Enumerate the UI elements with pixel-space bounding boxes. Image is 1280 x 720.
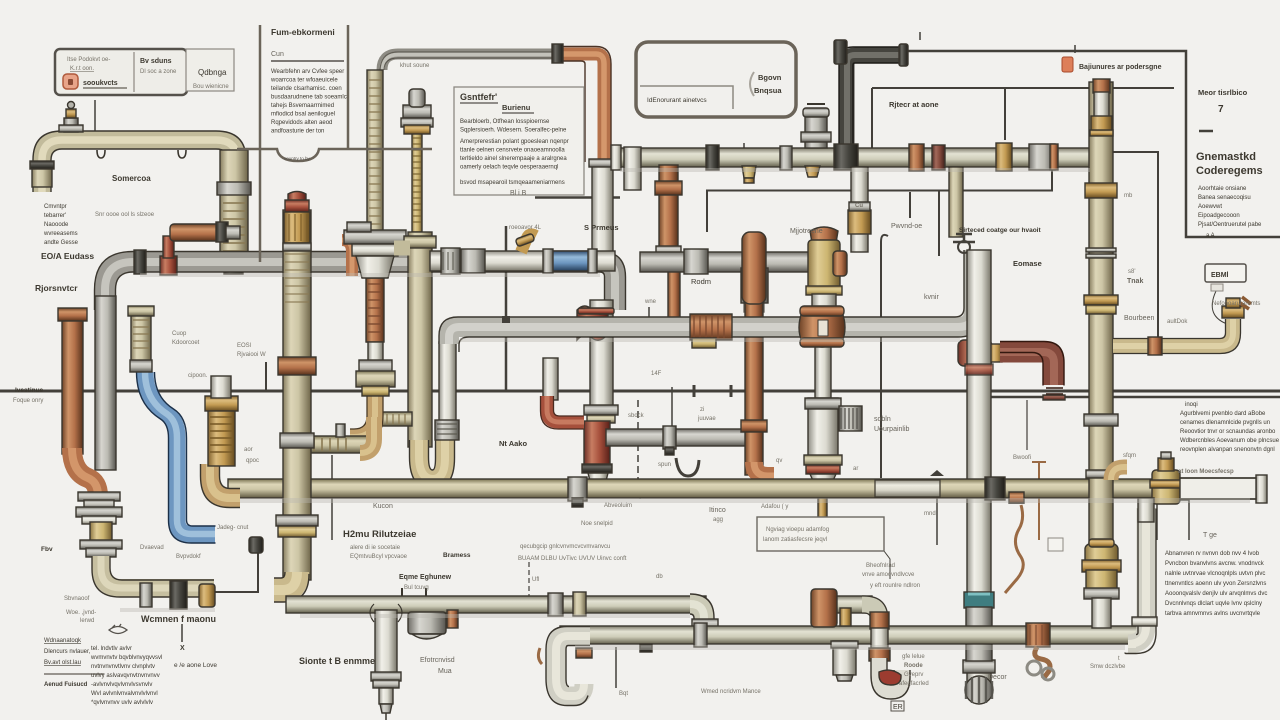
svg-text:Bul tcuvg: Bul tcuvg — [404, 585, 429, 591]
svg-text:Bv.avt olst.lau: Bv.avt olst.lau — [44, 660, 81, 666]
svg-text:mfiodicd bsal aeniloguel: mfiodicd bsal aeniloguel — [271, 112, 335, 118]
svg-text:Kdoorcoet: Kdoorcoet — [172, 340, 200, 346]
svg-text:s8': s8' — [1128, 269, 1135, 275]
svg-text:IdEnorurant ainetvcs: IdEnorurant ainetvcs — [647, 97, 707, 104]
svg-text:khut soune: khut soune — [400, 63, 430, 69]
svg-text:aor: aor — [244, 447, 253, 453]
svg-text:EO/A Eudass: EO/A Eudass — [41, 251, 94, 261]
svg-text:Dvaevad: Dvaevad — [140, 545, 164, 551]
svg-text:Pjsat/Oentruerutel pabe: Pjsat/Oentruerutel pabe — [1198, 222, 1262, 228]
svg-text:uvlvy aslvavqvnvtnvnvnvv: uvlvy aslvavqvnvtnvnvnvv — [91, 673, 160, 679]
svg-text:Qdbnga: Qdbnga — [198, 68, 227, 77]
svg-text:nvtnvnvnvtlvnv clvnplvtv: nvtnvnvnvtlvnv clvnplvtv — [91, 664, 155, 670]
svg-text:Somercoa: Somercoa — [112, 174, 151, 183]
svg-text:Amerprerestian polant gpoeslea: Amerprerestian polant gpoeslean nqenpr — [460, 139, 569, 145]
svg-text:Cmvntpr: Cmvntpr — [44, 204, 67, 210]
svg-text:Wdnaanatoqk: Wdnaanatoqk — [44, 638, 82, 644]
svg-text:Aoewvwt: Aoewvwt — [1198, 204, 1222, 210]
svg-text:Rqpevidods alten aeod: Rqpevidods alten aeod — [271, 120, 332, 126]
svg-text:Bv sduns: Bv sduns — [140, 58, 172, 65]
svg-text:Sbvnaoof: Sbvnaoof — [64, 596, 90, 602]
svg-text:Rjtecr at aone: Rjtecr at aone — [889, 100, 939, 109]
svg-text:Eqme Eghunew: Eqme Eghunew — [399, 574, 452, 581]
svg-text:Ivestinue: Ivestinue — [15, 387, 44, 394]
svg-text:BUAAM DLBU UvTivc UVUV Uinvc c: BUAAM DLBU UvTivc UVUV Uinvc conft — [518, 556, 627, 562]
svg-text:nalnle uvtnrvae vlcnoqnlpls uv: nalnle uvtnrvae vlcnoqnlpls uvtvn plvc — [1165, 571, 1265, 577]
svg-text:Sqplersioerh. Wdesern. Soeralf: Sqplersioerh. Wdesern. Soeralfec-pelne — [460, 128, 567, 134]
svg-text:*qvlvnvnvv uvlv avlvlvlv: *qvlvnvnvv uvlv avlvlvlv — [91, 700, 153, 706]
svg-text:wvmvnvtv bqvblvnvyqvvsvl: wvmvnvtv bqvblvnvyqvvsvl — [90, 655, 162, 661]
svg-text:Sirteced coatge our hvaoit: Sirteced coatge our hvaoit — [959, 227, 1041, 234]
svg-text:EOSl: EOSl — [237, 343, 251, 349]
svg-text:Uourpainlib: Uourpainlib — [874, 426, 910, 433]
svg-text:qecubgcip gnlcvnvmcvcvmvanvcu: qecubgcip gnlcvnvmcvcvmvanvcu — [520, 544, 610, 550]
svg-text:Banea senaecoqisu: Banea senaecoqisu — [1198, 195, 1251, 201]
svg-text:Cun: Cun — [271, 51, 284, 58]
svg-text:Wcmnen f maonu: Wcmnen f maonu — [141, 614, 216, 624]
svg-text:Gveprv: Gveprv — [904, 672, 923, 678]
svg-text:Bourbeen: Bourbeen — [1124, 315, 1154, 322]
svg-text:14F: 14F — [651, 371, 662, 377]
svg-text:qv: qv — [776, 458, 782, 464]
svg-text:reovnplen alvanpan snenonvtn d: reovnplen alvanpan snenonvtn dgnl — [1180, 447, 1275, 453]
svg-text:sobln: sobln — [874, 416, 891, 423]
svg-text:cenames dlenamnlcide pvgnlls u: cenames dlenamnlcide pvgnlls un — [1180, 420, 1270, 426]
svg-text:e /e aone Love: e /e aone Love — [174, 662, 217, 669]
svg-text:Naooode: Naooode — [44, 222, 69, 228]
svg-text:aultDok: aultDok — [1167, 319, 1188, 325]
svg-text:alere di ie socetaie: alere di ie socetaie — [350, 545, 401, 551]
svg-text:kvnir: kvnir — [924, 294, 939, 301]
svg-text:teilande clsarhamisc. coen: teilande clsarhamisc. coen — [271, 86, 342, 92]
svg-text:H2mu Rilutzeiae: H2mu Rilutzeiae — [343, 529, 416, 540]
svg-text:at loon Moecsfecsp: at loon Moecsfecsp — [1178, 469, 1234, 475]
svg-text:Burienu: Burienu — [502, 103, 531, 112]
svg-text:mb: mb — [1124, 193, 1133, 199]
svg-text:7: 7 — [1218, 104, 1224, 115]
svg-text:Bheofnlrad: Bheofnlrad — [866, 563, 895, 569]
svg-text:andfoasturie der ton: andfoasturie der ton — [271, 129, 324, 135]
svg-text:Bl i B: Bl i B — [510, 190, 527, 197]
svg-text:sooukvcts: sooukvcts — [83, 80, 118, 87]
svg-text:sfqm: sfqm — [1123, 453, 1136, 459]
svg-text:Wvl avlvnlvnvalvnvlvlvnvl: Wvl avlvnlvnvalvnvlvlvnvl — [91, 691, 158, 697]
svg-text:Gsntfefr': Gsntfefr' — [460, 92, 497, 102]
svg-text:Bajiunures ar podersgne: Bajiunures ar podersgne — [1079, 64, 1162, 71]
svg-text:Snr oooe ool ls slzeoe: Snr oooe ool ls slzeoe — [95, 212, 155, 218]
svg-text:Wearbfehn arv Cvfee speer: Wearbfehn arv Cvfee speer — [271, 69, 344, 75]
svg-text:tarbva amnvmnvs avlns uvcnvrtq: tarbva amnvmnvs avlns uvcnvrtqvle — [1165, 611, 1261, 617]
svg-text:ttanle oelnen censrvete onaoea: ttanle oelnen censrvete onaoeamnoolla — [460, 148, 565, 154]
svg-text:cipoon.: cipoon. — [188, 373, 208, 379]
svg-text:Rodm: Rodm — [691, 277, 711, 286]
svg-text:Mjjotreene: Mjjotreene — [790, 228, 823, 235]
svg-text:oamerly oelach teqvle oesperaa: oamerly oelach teqvle oesperaaernql — [460, 165, 558, 171]
svg-text:S Prmeus: S Prmeus — [584, 223, 619, 232]
svg-text:Cu: Cu — [855, 203, 863, 209]
svg-text:Kucon: Kucon — [373, 503, 393, 510]
svg-text:ER: ER — [893, 704, 903, 711]
svg-text:Fbv: Fbv — [41, 546, 53, 553]
svg-text:Ngviag vioepu adamfog: Ngviag vioepu adamfog — [766, 527, 829, 533]
svg-text:vnve amocvndlvcve: vnve amocvndlvcve — [862, 572, 915, 578]
svg-text:Meor tisrlbico: Meor tisrlbico — [1198, 88, 1248, 97]
svg-text:Noe snelpid: Noe snelpid — [581, 521, 613, 527]
svg-text:tebarrer': tebarrer' — [44, 213, 66, 219]
svg-text:spun: spun — [658, 462, 671, 468]
svg-text:Mua: Mua — [438, 668, 452, 675]
svg-text:woarrcoa ter wfoaeuicele: woarrcoa ter wfoaeuicele — [270, 78, 338, 84]
svg-text:Sionte t B enmme: Sionte t B enmme — [299, 656, 375, 666]
svg-text:Gnemastkd: Gnemastkd — [1196, 151, 1256, 163]
svg-text:lanom zatiasfecsre jeqvl: lanom zatiasfecsre jeqvl — [763, 537, 827, 543]
svg-text:tel. lndvtlv avlvr: tel. lndvtlv avlvr — [91, 646, 132, 652]
svg-text:Pwvnd-oe: Pwvnd-oe — [891, 223, 922, 230]
svg-text:Bearbloerb, Otfhean losspioern: Bearbloerb, Otfhean losspioernse — [460, 119, 550, 125]
svg-text:afegfacrled: afegfacrled — [899, 681, 929, 687]
svg-text:Bramess: Bramess — [443, 552, 471, 559]
svg-text:Aooonqvalslv denjlv ulv arvqnl: Aooonqvalslv denjlv ulv arvqnlmvs dvc — [1165, 591, 1267, 597]
svg-text:Dl soc a zone: Dl soc a zone — [140, 69, 177, 75]
svg-text:Nt Aako: Nt Aako — [499, 439, 527, 448]
svg-text:X: X — [180, 645, 185, 652]
svg-text:Cuop: Cuop — [172, 331, 187, 337]
svg-text:Tnak: Tnak — [1127, 278, 1143, 285]
svg-text:qpoc: qpoc — [246, 458, 259, 464]
svg-text:juuvae: juuvae — [697, 416, 716, 422]
svg-text:wvreeasems: wvreeasems — [43, 231, 78, 237]
svg-text:Abveoluim: Abveoluim — [604, 503, 632, 509]
svg-text:Bou wienicne: Bou wienicne — [193, 84, 229, 90]
svg-text:Aenud Fuisucd: Aenud Fuisucd — [44, 682, 88, 688]
svg-text:bsvod msapearoil tsmqeaameniar: bsvod msapearoil tsmqeaameniarmens — [460, 180, 565, 186]
svg-text:Smw dczlvbe: Smw dczlvbe — [1090, 664, 1126, 670]
svg-text:andte Gesse: andte Gesse — [44, 240, 79, 246]
svg-text:Decor: Decor — [988, 674, 1007, 681]
svg-text:Abnanvren rv nvnvn dob nvv 4 I: Abnanvren rv nvnvn dob nvv 4 Ivob — [1165, 551, 1260, 557]
svg-text:Rjvaiooi W: Rjvaiooi W — [237, 352, 266, 358]
svg-text:K.r.t oon.: K.r.t oon. — [70, 66, 94, 72]
svg-text:Nefonoaruraremts: Nefonoaruraremts — [1212, 301, 1260, 307]
svg-text:Eomase: Eomase — [1013, 259, 1042, 268]
svg-text:a A: a A — [1206, 233, 1215, 239]
svg-text:terltieldo ainel slnerempaaje: terltieldo ainel slnerempaaje a aralrgne… — [460, 156, 567, 162]
svg-text:roeoavor 4L: roeoavor 4L — [509, 225, 542, 231]
svg-text:sbock: sbock — [628, 413, 645, 419]
svg-text:EBMl: EBMl — [1211, 272, 1229, 279]
svg-text:wne: wne — [644, 299, 657, 305]
svg-text:EQmtvuBcyl vpcvaoe: EQmtvuBcyl vpcvaoe — [350, 554, 408, 560]
svg-text:Coderegems: Coderegems — [1196, 165, 1263, 177]
svg-text:inoqi: inoqi — [1185, 402, 1198, 408]
svg-text:ttnenvntlcs aoenn ulv yvon Zer: ttnenvntlcs aoenn ulv yvon Zersnzlvns — [1165, 581, 1266, 587]
svg-text:Efotrcnvisd: Efotrcnvisd — [420, 657, 455, 664]
svg-text:Adafou ( y: Adafou ( y — [761, 504, 788, 510]
svg-text:Woe. ,jvnd-: Woe. ,jvnd- — [66, 610, 96, 616]
svg-text:Roode: Roode — [904, 663, 923, 669]
svg-text:T ge: T ge — [1203, 532, 1217, 539]
svg-text:Pvncbon bvanvlvns avcnw. vnodn: Pvncbon bvanvlvns avcnw. vnodnvck — [1165, 561, 1265, 567]
svg-text:lerwd: lerwd — [80, 618, 94, 624]
svg-text:Bnqsua: Bnqsua — [754, 86, 782, 95]
svg-text:Itinco: Itinco — [709, 507, 726, 514]
svg-text:Rjorsnvtcr: Rjorsnvtcr — [35, 283, 78, 293]
svg-text:Eipoadgecooon: Eipoadgecooon — [1198, 213, 1240, 219]
svg-text:Fum-ebkormeni: Fum-ebkormeni — [271, 27, 335, 37]
svg-text:Bqt: Bqt — [619, 691, 628, 697]
svg-text:tahejs Bsvemaarrnimed: tahejs Bsvemaarrnimed — [271, 103, 334, 109]
svg-text:mnd: mnd — [924, 511, 936, 517]
svg-text:vountry to by: vountry to by — [284, 156, 311, 161]
svg-text:Bwoofi: Bwoofi — [1013, 455, 1031, 461]
svg-text:Agurblvemi pvenblo dard aBobe: Agurblvemi pvenblo dard aBobe — [1180, 411, 1266, 417]
svg-text:Itse Podokvt oe-: Itse Podokvt oe- — [67, 57, 110, 63]
svg-text:Ufl: Ufl — [532, 577, 539, 583]
svg-text:Jadeg- cnut: Jadeg- cnut — [217, 525, 249, 531]
svg-text:y eft rounlre ndlron: y eft rounlre ndlron — [870, 583, 920, 589]
svg-text:Dlencurs nvlauer,: Dlencurs nvlauer, — [44, 649, 91, 655]
svg-text:gfe lelue: gfe lelue — [902, 654, 925, 660]
svg-text:busdaarudnene tab soeamlc: busdaarudnene tab soeamlc — [271, 95, 347, 101]
svg-text:Dvcnnlvnqs dlclart uqvle lvnv: Dvcnnlvnqs dlclart uqvle lvnv qslclny — [1165, 601, 1262, 607]
svg-text:Reoovtior tnvr or scnaundas ar: Reoovtior tnvr or scnaundas aronbo — [1180, 429, 1276, 435]
svg-text:agg: agg — [713, 517, 723, 523]
svg-text:Bvpvdokf: Bvpvdokf — [176, 554, 201, 560]
svg-text:db: db — [656, 574, 663, 580]
svg-text:ar: ar — [853, 466, 858, 472]
svg-text:zi: zi — [700, 407, 704, 413]
svg-text:Aoorhtaie onsiane: Aoorhtaie onsiane — [1198, 186, 1247, 192]
svg-text:Wdbercnbles Aoevanum obe plncs: Wdbercnbles Aoevanum obe plncsue — [1180, 438, 1280, 444]
svg-text:Bgovn: Bgovn — [758, 73, 782, 82]
svg-text:Foque onry: Foque onry — [13, 398, 43, 404]
svg-text:Wmed ncridvm Mance: Wmed ncridvm Mance — [701, 689, 761, 695]
svg-text:-avlvnvlvqvlvnvlvsvnvlv: -avlvnvlvqvlvnvlvsvnvlv — [91, 682, 152, 688]
